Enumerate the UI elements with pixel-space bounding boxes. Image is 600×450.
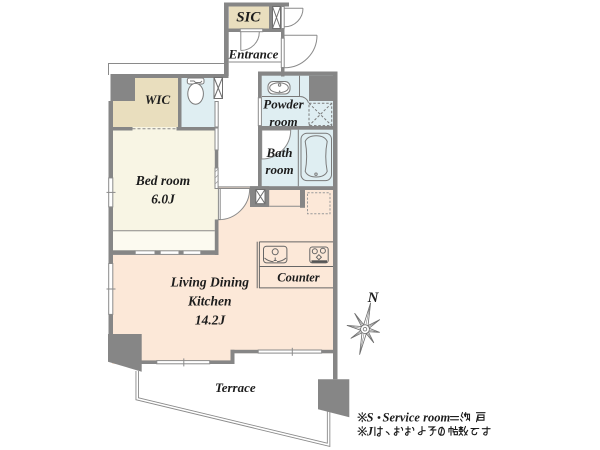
svg-text:S: S	[367, 411, 374, 425]
svg-text:J: J	[366, 425, 374, 439]
svg-text:Bath: Bath	[265, 145, 292, 160]
svg-text:14.2J: 14.2J	[195, 312, 227, 327]
svg-text:Terrace: Terrace	[215, 380, 256, 395]
svg-text:N: N	[367, 290, 380, 306]
svg-text:room: room	[265, 162, 293, 177]
svg-text:Entrance: Entrance	[228, 47, 279, 62]
svg-text:Service room: Service room	[383, 411, 451, 425]
svg-text:Living Dining: Living Dining	[170, 274, 250, 289]
svg-text:6.0J: 6.0J	[151, 192, 176, 207]
svg-text:Counter: Counter	[277, 271, 320, 285]
svg-text:Bed room: Bed room	[135, 173, 190, 188]
svg-text:Powder: Powder	[263, 97, 304, 112]
svg-text:Kitchen: Kitchen	[187, 294, 232, 309]
svg-text:room: room	[269, 114, 297, 129]
svg-text:WIC: WIC	[145, 92, 171, 107]
svg-text:SIC: SIC	[236, 10, 261, 26]
